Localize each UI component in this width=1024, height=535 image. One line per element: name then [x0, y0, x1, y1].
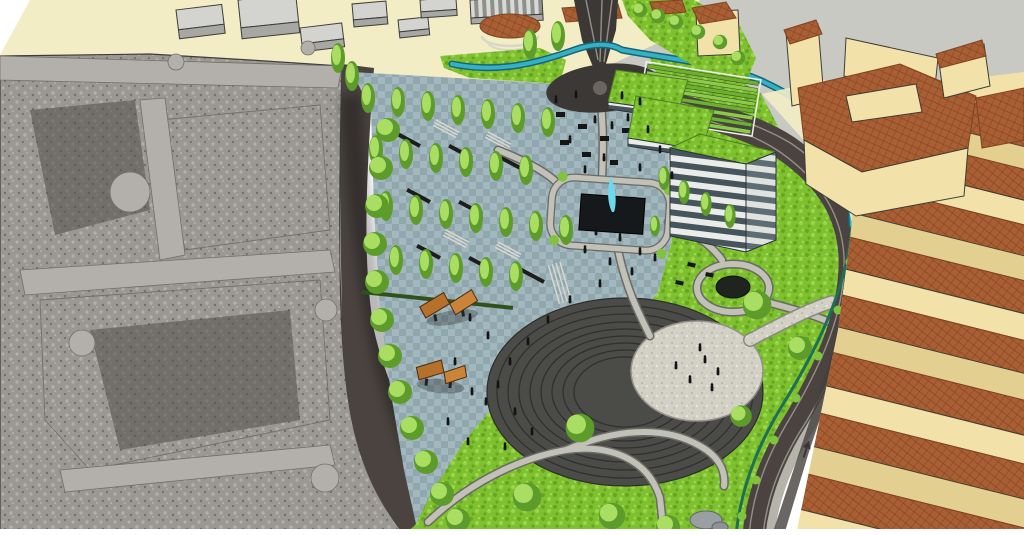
massing-block [176, 4, 225, 38]
person-figure [621, 91, 624, 99]
person-figure [595, 227, 598, 235]
tree-icon [378, 344, 402, 368]
person-figure [555, 95, 558, 103]
person-figure [447, 417, 450, 425]
person-figure [609, 257, 612, 265]
tree-icon [481, 99, 495, 129]
person-figure [497, 380, 500, 388]
fortress-turret [69, 330, 95, 356]
tree-icon [429, 143, 443, 173]
tree-icon [369, 156, 393, 180]
tree-icon [365, 270, 389, 294]
pond [716, 276, 750, 298]
fortress-turret [301, 41, 315, 55]
fortress-turret [315, 299, 337, 321]
person-figure [639, 97, 642, 105]
tree-icon [669, 15, 683, 29]
tree-icon [391, 87, 405, 117]
tree-icon [363, 232, 387, 256]
person-figure [711, 383, 714, 391]
tree-icon [421, 91, 435, 121]
tree-icon [724, 204, 735, 228]
tree-icon [559, 215, 573, 245]
tree-icon [743, 291, 772, 320]
person-figure [675, 361, 678, 369]
person-figure [527, 337, 530, 345]
glass-facade [746, 152, 776, 252]
person-figure [467, 437, 470, 445]
tree-icon [365, 194, 389, 218]
massing-block [420, 0, 457, 18]
scene-rendering [0, 0, 1024, 535]
person-figure [575, 90, 578, 98]
tree-icon [651, 9, 665, 23]
tree-icon [331, 43, 345, 73]
tree-icon [700, 192, 711, 216]
person-figure [599, 279, 602, 287]
tree-icon [529, 211, 543, 241]
person-figure [671, 171, 674, 179]
massing-block [352, 1, 388, 27]
roundabout-island [593, 81, 607, 95]
person-figure [603, 153, 606, 161]
tree-icon [731, 51, 745, 65]
person-figure [659, 145, 662, 153]
person-figure [569, 135, 572, 143]
person-figure [619, 233, 622, 241]
tree-icon [399, 139, 413, 169]
fortress-turret [110, 172, 150, 212]
person-figure [485, 397, 488, 405]
person-figure [699, 343, 702, 351]
tree-icon [469, 203, 483, 233]
person-figure [654, 253, 657, 261]
tree-icon [361, 83, 375, 113]
bottom-border [0, 529, 1024, 535]
person-figure [584, 245, 587, 253]
massing-block [398, 17, 430, 38]
person-figure [487, 331, 490, 339]
tree-icon [566, 414, 595, 443]
tree-icon [658, 166, 669, 190]
tree-icon [788, 336, 812, 360]
tree-icon [446, 508, 470, 532]
person-figure [627, 113, 630, 121]
person-figure [454, 357, 457, 365]
tree-icon [523, 29, 537, 59]
tree-icon [451, 95, 465, 125]
person-figure [631, 267, 634, 275]
tree-icon [489, 151, 503, 181]
person-figure [611, 121, 614, 129]
person-figure [639, 163, 642, 171]
tree-icon [449, 253, 463, 283]
tree-icon [509, 261, 523, 291]
tree-icon [400, 416, 424, 440]
fortress-turret [311, 464, 339, 492]
tree-icon [409, 195, 423, 225]
tree-icon [519, 155, 533, 185]
person-figure [469, 313, 472, 321]
tree-icon [389, 245, 403, 275]
tree-icon [511, 103, 525, 133]
tree-icon [541, 107, 555, 137]
tree-icon [430, 482, 454, 506]
tree-icon [730, 405, 752, 427]
tree-icon [345, 61, 359, 91]
tree-icon [499, 207, 513, 237]
person-figure [584, 165, 587, 173]
person-figure [509, 357, 512, 365]
tree-icon [678, 180, 689, 204]
tree-icon [599, 503, 625, 529]
tree-icon [479, 257, 493, 287]
person-figure [504, 442, 507, 450]
fortress-turret [168, 54, 184, 70]
person-figure [689, 375, 692, 383]
person-figure [647, 125, 650, 133]
tree-icon [691, 25, 705, 39]
fortress-court-terrace [160, 105, 330, 250]
tree-icon [414, 450, 438, 474]
person-figure [471, 387, 474, 395]
tree-icon [513, 483, 542, 512]
tree-icon [713, 35, 727, 49]
person-figure [547, 315, 550, 323]
tree-icon [376, 118, 400, 142]
person-figure [639, 247, 642, 255]
person-figure [594, 115, 597, 123]
tree-icon [459, 147, 473, 177]
tree-icon [551, 21, 565, 51]
person-figure [531, 427, 534, 435]
massing-block [238, 0, 300, 39]
person-figure [717, 367, 720, 375]
person-figure [704, 355, 707, 363]
tree-icon [633, 3, 647, 17]
tree-icon [419, 249, 433, 279]
roof [976, 88, 1024, 148]
rendering-viewport [0, 0, 1024, 535]
tree-icon [370, 308, 394, 332]
tree-icon [439, 199, 453, 229]
tree-icon [650, 216, 660, 237]
tree-icon [388, 380, 412, 404]
person-figure [514, 407, 517, 415]
person-figure [569, 295, 572, 303]
